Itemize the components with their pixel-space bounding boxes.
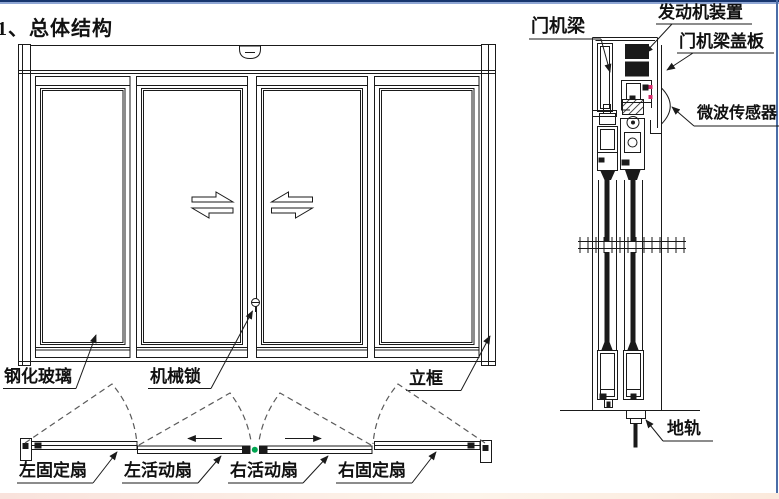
mechanical-lock-icon [252,299,260,313]
hanger-left [598,105,618,181]
slide-arrows-right-icon [272,192,313,218]
label-mechanical-lock: 机械锁 [150,367,201,387]
section-door-leaves [599,178,643,351]
slide-arrows-left-icon [192,192,233,218]
label-tempered-glass: 钢化玻璃 [4,367,72,387]
microwave-sensor-bulge [662,88,671,124]
panel-left-active [137,77,248,358]
plan-end-cap-right [481,441,492,463]
plan-panel-left-active [138,446,251,454]
swing-arcs [25,384,485,445]
left-jamb [19,45,31,366]
ceiling-sensor-icon [240,46,261,59]
label-right-fixed-panel: 右固定扇 [338,461,406,481]
section-bottom-profiles [598,351,644,408]
label-beam-cover-plate: 门机梁盖板 [679,32,764,52]
label-left-active-panel: 左活动扇 [124,461,192,481]
panel-right-active [257,77,368,358]
label-microwave-sensor: 微波传感器 [697,105,777,123]
label-floor-track: 地轨 [667,419,701,439]
engine-unit [625,44,649,77]
label-left-fixed-panel: 左固定扇 [19,461,87,481]
slide: 1、总体结构 [0,0,779,499]
header-bottom [19,71,496,74]
panel-right-fixed [375,77,480,358]
plan-panel-left-fixed [32,442,138,450]
label-right-active-panel: 右活动扇 [230,461,298,481]
hanger-right [621,96,645,181]
plan-panel-right-fixed [375,442,481,450]
plan-panel-right-active [260,446,373,454]
front-elevation [3,45,496,391]
label-door-machine-beam: 门机梁 [531,16,585,37]
section-leader-lines [529,24,779,441]
label-vertical-frame: 立框 [409,369,443,389]
section-view [529,24,779,448]
label-engine-device: 发动机装置 [658,3,743,23]
door-structure-diagram [0,0,779,499]
center-meeting-dot [252,447,258,453]
floor-track [627,411,646,448]
panel-left-fixed [36,77,131,358]
